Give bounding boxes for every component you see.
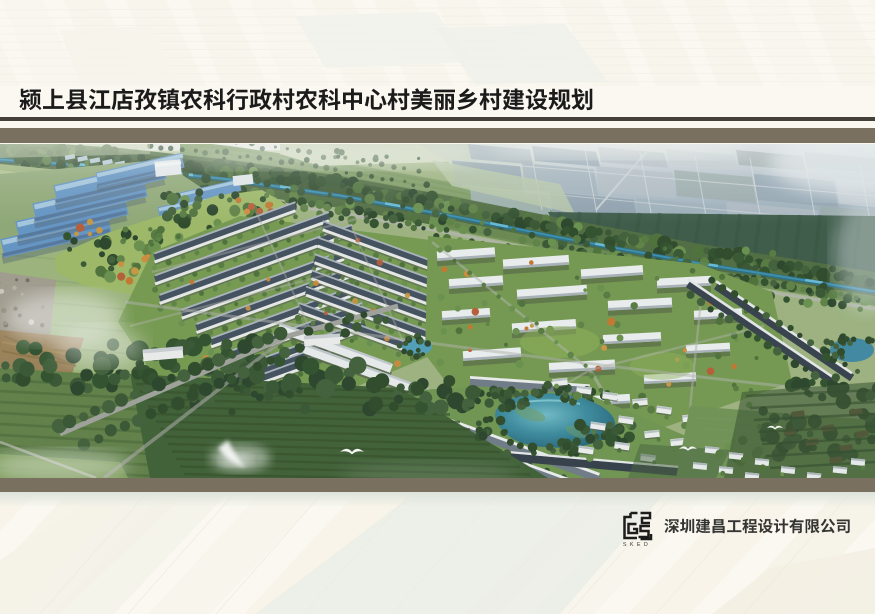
svg-text:SKED: SKED [623,542,651,548]
